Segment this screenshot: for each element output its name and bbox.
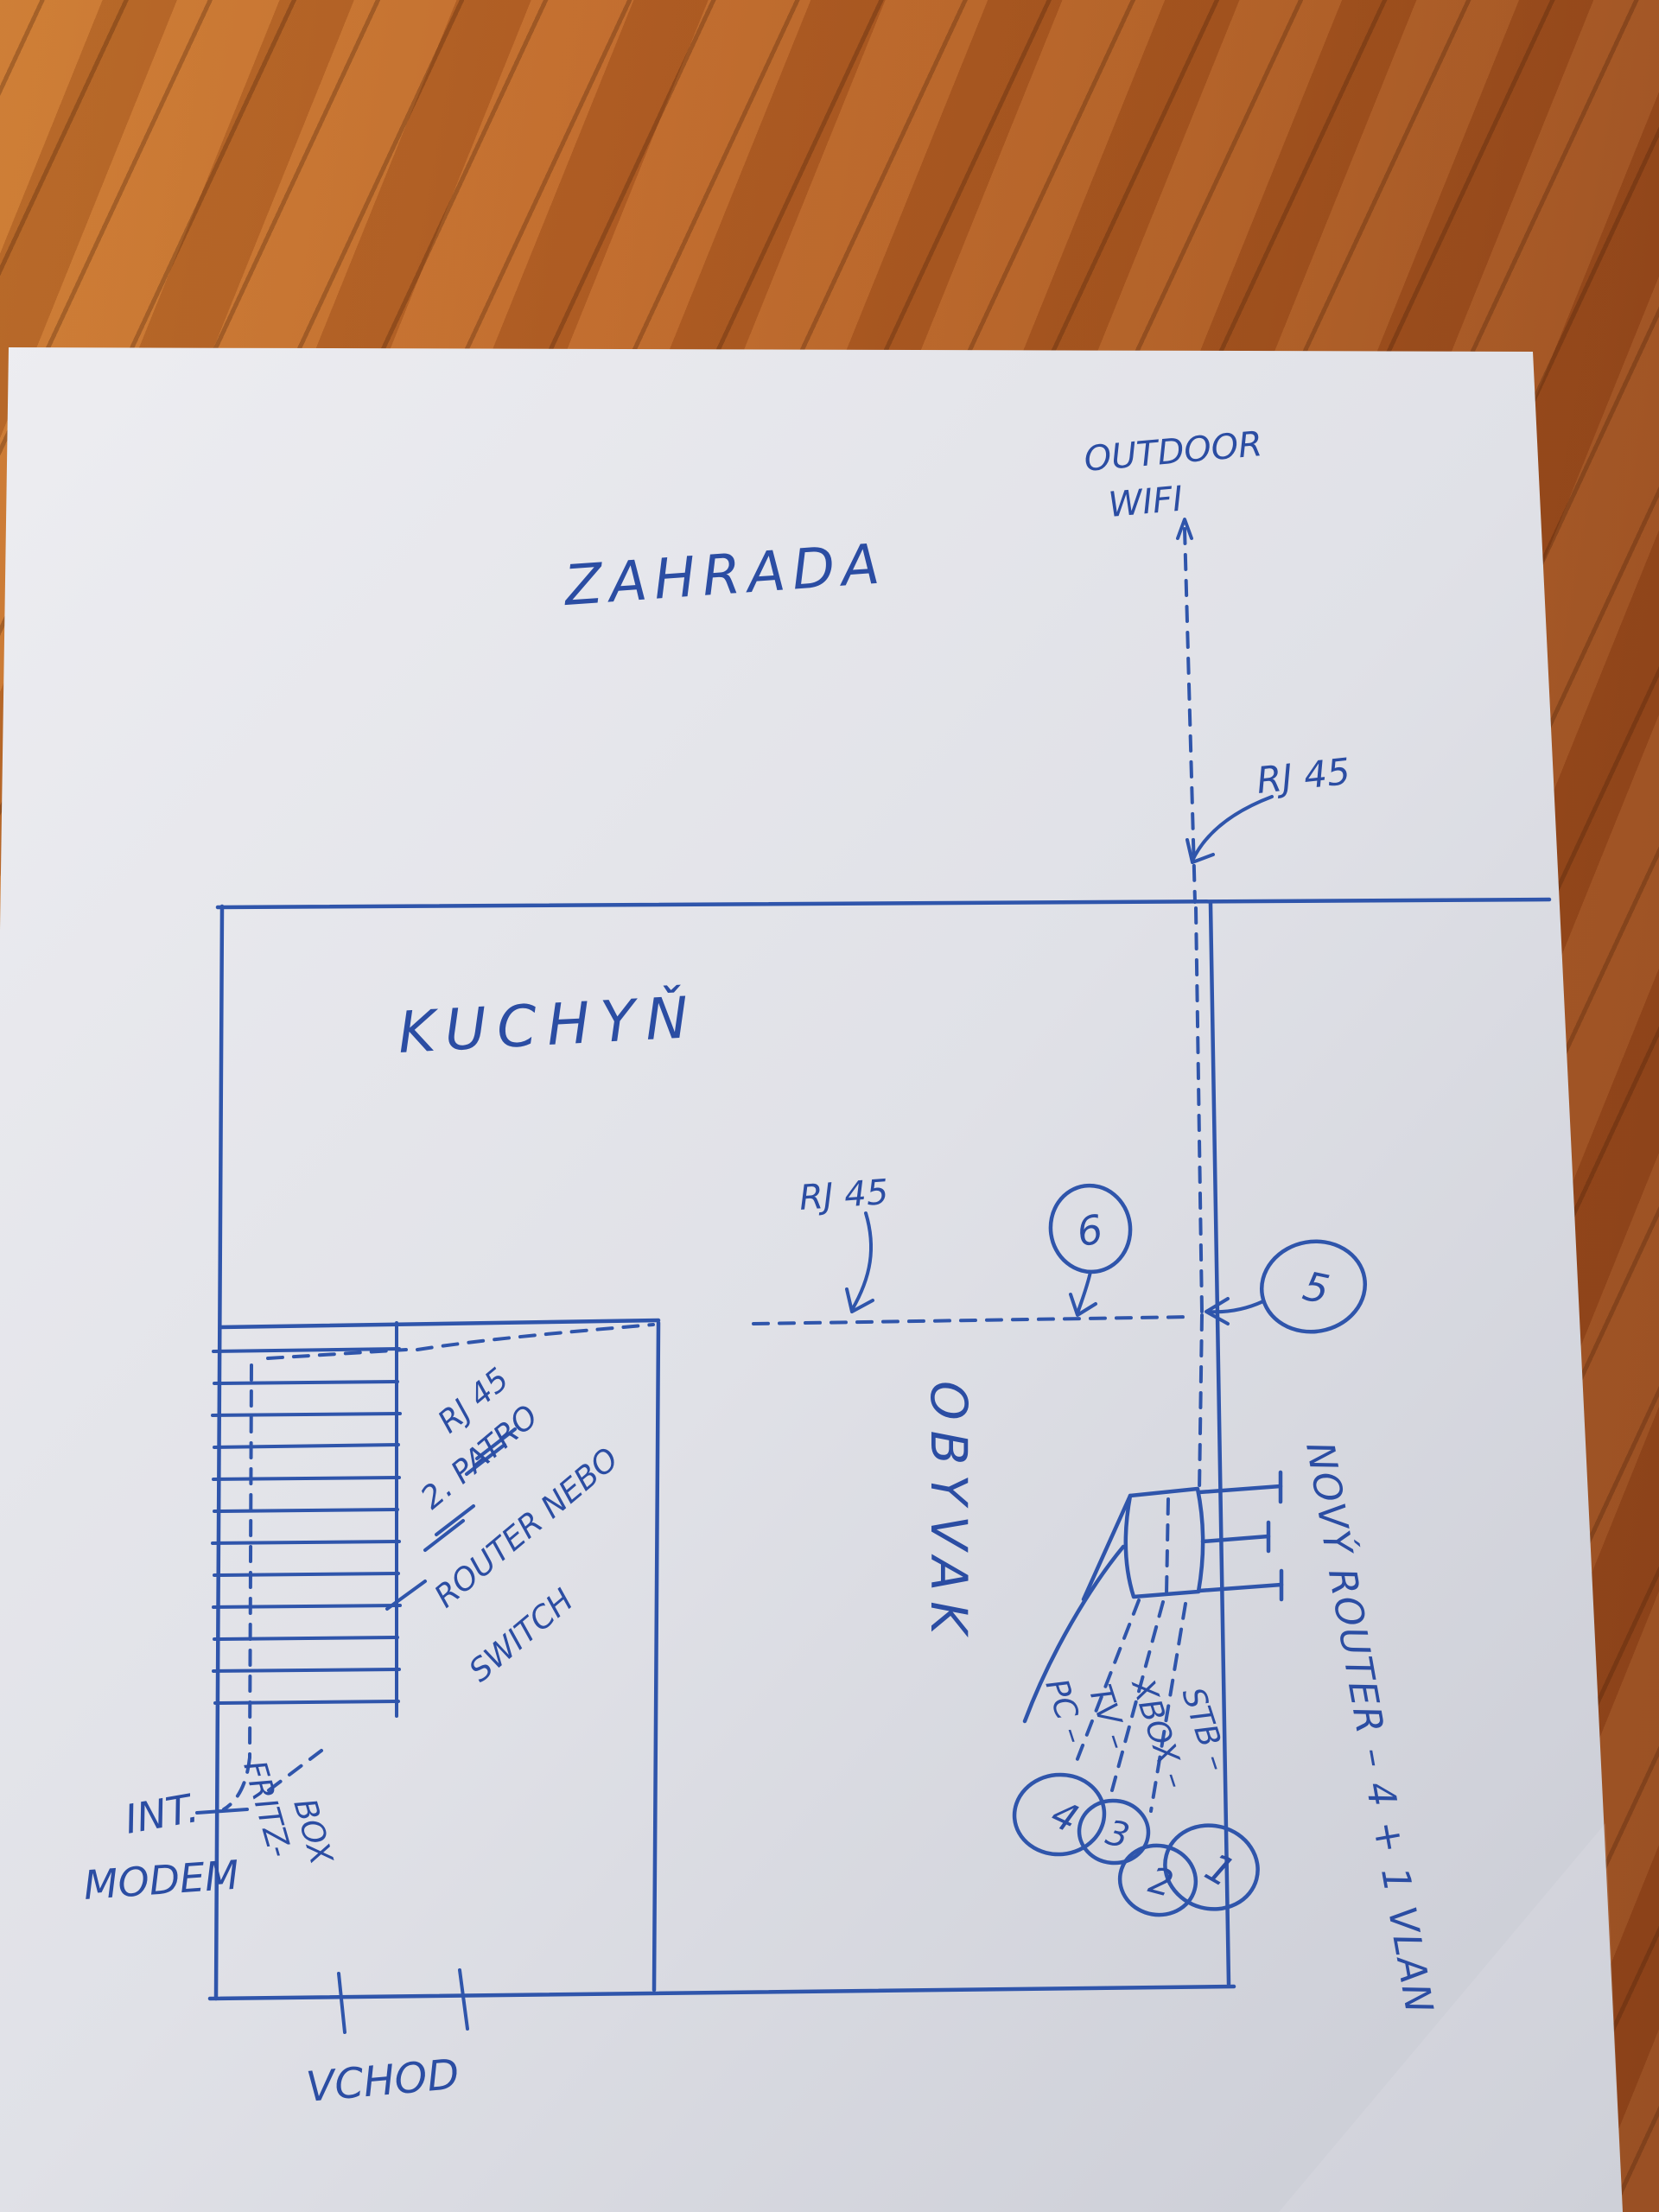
paper-sheet: [0, 347, 1623, 2212]
label-obyvak: OBYVAK: [919, 1381, 978, 1644]
photo-of-hand-drawn-network-floorplan: 6 5 1 2 3 4 ZAHRADA OUTDOOR WIFI RJ 45 K…: [0, 0, 1659, 2212]
label-outdoor-wifi-line2: WIFI: [1107, 480, 1185, 525]
label-rj45-mid: RJ 45: [798, 1173, 889, 1218]
floorplan-sketch: 6 5 1 2 3 4 ZAHRADA OUTDOOR WIFI RJ 45 K…: [0, 0, 1659, 2212]
